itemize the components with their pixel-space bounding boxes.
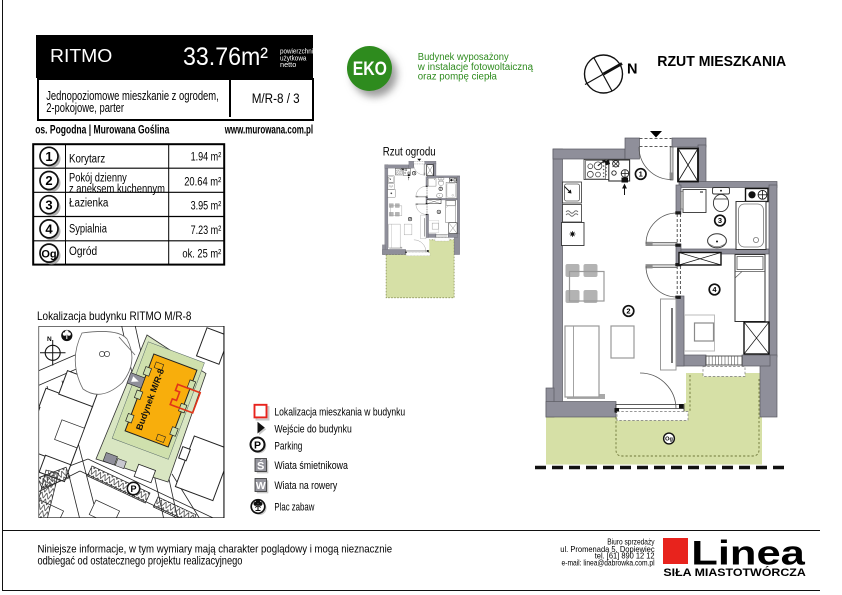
svg-text:2: 2	[45, 173, 52, 188]
svg-text:z aneksem kuchennym: z aneksem kuchennym	[69, 183, 165, 196]
svg-text:Wiata śmietnikowa: Wiata śmietnikowa	[274, 460, 348, 472]
svg-text:Łazienka: Łazienka	[69, 197, 109, 210]
svg-text:N: N	[47, 336, 52, 343]
svg-text:Wejście do budynku: Wejście do budynku	[274, 424, 351, 436]
svg-text:3: 3	[45, 197, 52, 212]
svg-text:Lokalizacja budynku RITMO M/R-: Lokalizacja budynku RITMO M/R-8	[37, 310, 191, 323]
svg-text:Parking: Parking	[274, 440, 302, 452]
svg-text:ok. 25 m²: ok. 25 m²	[182, 247, 221, 260]
svg-text:N: N	[627, 62, 637, 78]
svg-text:Og: Og	[41, 248, 56, 260]
svg-text:Plac zabaw: Plac zabaw	[274, 501, 314, 514]
svg-text:1.94 m²: 1.94 m²	[191, 150, 222, 164]
svg-text:EKO: EKO	[353, 58, 387, 80]
svg-text:Rzut ogrodu: Rzut ogrodu	[383, 146, 436, 159]
svg-text:P: P	[130, 484, 136, 494]
svg-text:33.76m²: 33.76m²	[183, 43, 268, 71]
svg-text:RZUT MIESZKANIA: RZUT MIESZKANIA	[657, 54, 786, 71]
svg-text:W: W	[256, 480, 266, 492]
svg-text:odbiegać od ostatecznego proje: odbiegać od ostatecznego projektu realiz…	[38, 555, 243, 567]
svg-text:20.64 m²: 20.64 m²	[184, 175, 221, 188]
svg-text:oraz pompę ciepła: oraz pompę ciepła	[418, 71, 498, 82]
svg-text:4: 4	[45, 222, 53, 237]
svg-text:1: 1	[45, 149, 52, 164]
svg-text:P: P	[254, 440, 261, 452]
svg-text:Og: Og	[665, 437, 673, 443]
svg-text:2-pokojowe, parter: 2-pokojowe, parter	[46, 102, 124, 116]
svg-text:Ogród: Ogród	[69, 245, 97, 258]
svg-text:www.murowana.com.pl: www.murowana.com.pl	[224, 124, 313, 137]
svg-text:os. Pogodna | Murowana Goślina: os. Pogodna | Murowana Goślina	[35, 123, 169, 137]
svg-text:netto: netto	[280, 60, 296, 69]
svg-text:Wiata na rowery: Wiata na rowery	[274, 480, 337, 492]
svg-text:e-mail: linea@dabrowka.com.pl: e-mail: linea@dabrowka.com.pl	[562, 558, 655, 568]
svg-text:Korytarz: Korytarz	[69, 152, 105, 165]
svg-text:3.95 m²: 3.95 m²	[191, 199, 222, 213]
svg-text:RITMO: RITMO	[50, 46, 112, 67]
svg-text:M/R-8 / 3: M/R-8 / 3	[252, 91, 300, 106]
svg-text:Ś: Ś	[257, 459, 264, 472]
svg-text:Lokalizacja mieszkania w budyn: Lokalizacja mieszkania w budynku	[274, 406, 405, 418]
svg-text:SIŁA MIASTOTWÓRCZA: SIŁA MIASTOTWÓRCZA	[663, 567, 806, 579]
svg-text:Sypialnia: Sypialnia	[69, 222, 108, 235]
svg-text:Niniejsze informacje, w tym wy: Niniejsze informacje, w tym wymiary mają…	[38, 543, 393, 556]
svg-text:7.23 m²: 7.23 m²	[191, 224, 222, 238]
